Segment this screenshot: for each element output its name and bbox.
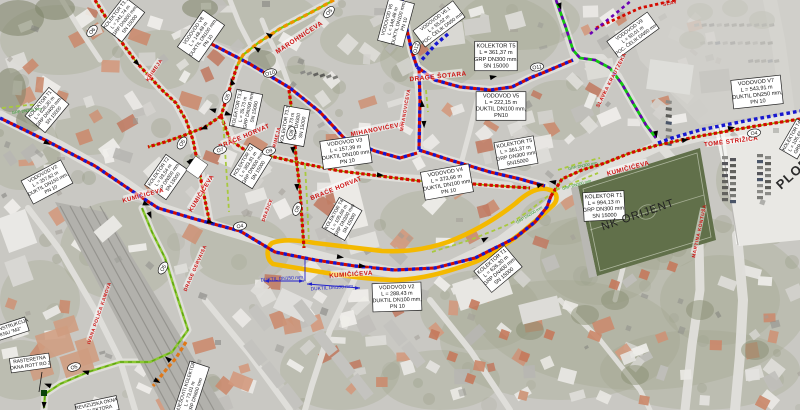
svg-text:O4: O4 (236, 223, 244, 230)
svg-text:DUKTIL DN100 mm,: DUKTIL DN100 mm, (476, 107, 527, 113)
svg-text:SN 15000: SN 15000 (483, 64, 508, 70)
svg-text:PN10: PN10 (494, 113, 508, 119)
svg-text:L = 222,15 m: L = 222,15 m (485, 100, 517, 106)
svg-text:VODOVOD V5: VODOVOD V5 (483, 94, 519, 100)
svg-text:GRP DN300 mm.: GRP DN300 mm. (474, 57, 519, 63)
svg-text:PN 10: PN 10 (390, 304, 405, 311)
svg-text:O4: O4 (750, 130, 758, 137)
svg-text:L = 361,37 m: L = 361,37 m (479, 50, 512, 56)
svg-text:KOLEKTOR T5: KOLEKTOR T5 (477, 43, 516, 49)
